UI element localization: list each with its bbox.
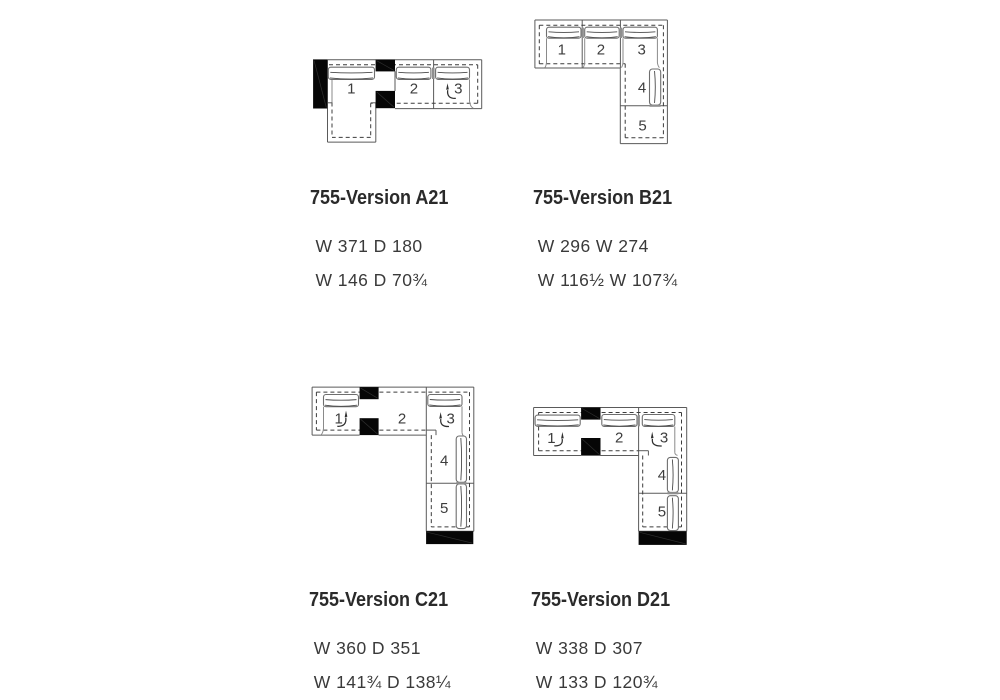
svg-text:3: 3 (454, 81, 462, 98)
svg-text:1: 1 (347, 81, 355, 98)
svg-text:4: 4 (638, 80, 646, 97)
svg-text:3: 3 (660, 430, 668, 447)
svg-text:5: 5 (638, 117, 646, 134)
svg-text:4: 4 (658, 467, 666, 484)
svg-text:3: 3 (638, 42, 646, 59)
svg-text:1: 1 (547, 430, 555, 447)
svg-text:3: 3 (447, 410, 455, 427)
svg-text:2: 2 (410, 81, 418, 98)
svg-text:4: 4 (440, 453, 448, 470)
svg-text:1: 1 (558, 42, 566, 59)
svg-text:2: 2 (398, 410, 406, 427)
svg-text:5: 5 (440, 500, 448, 517)
svg-text:2: 2 (597, 42, 605, 59)
svg-text:2: 2 (615, 430, 623, 447)
svg-text:5: 5 (658, 503, 666, 520)
svg-text:1: 1 (335, 410, 343, 427)
